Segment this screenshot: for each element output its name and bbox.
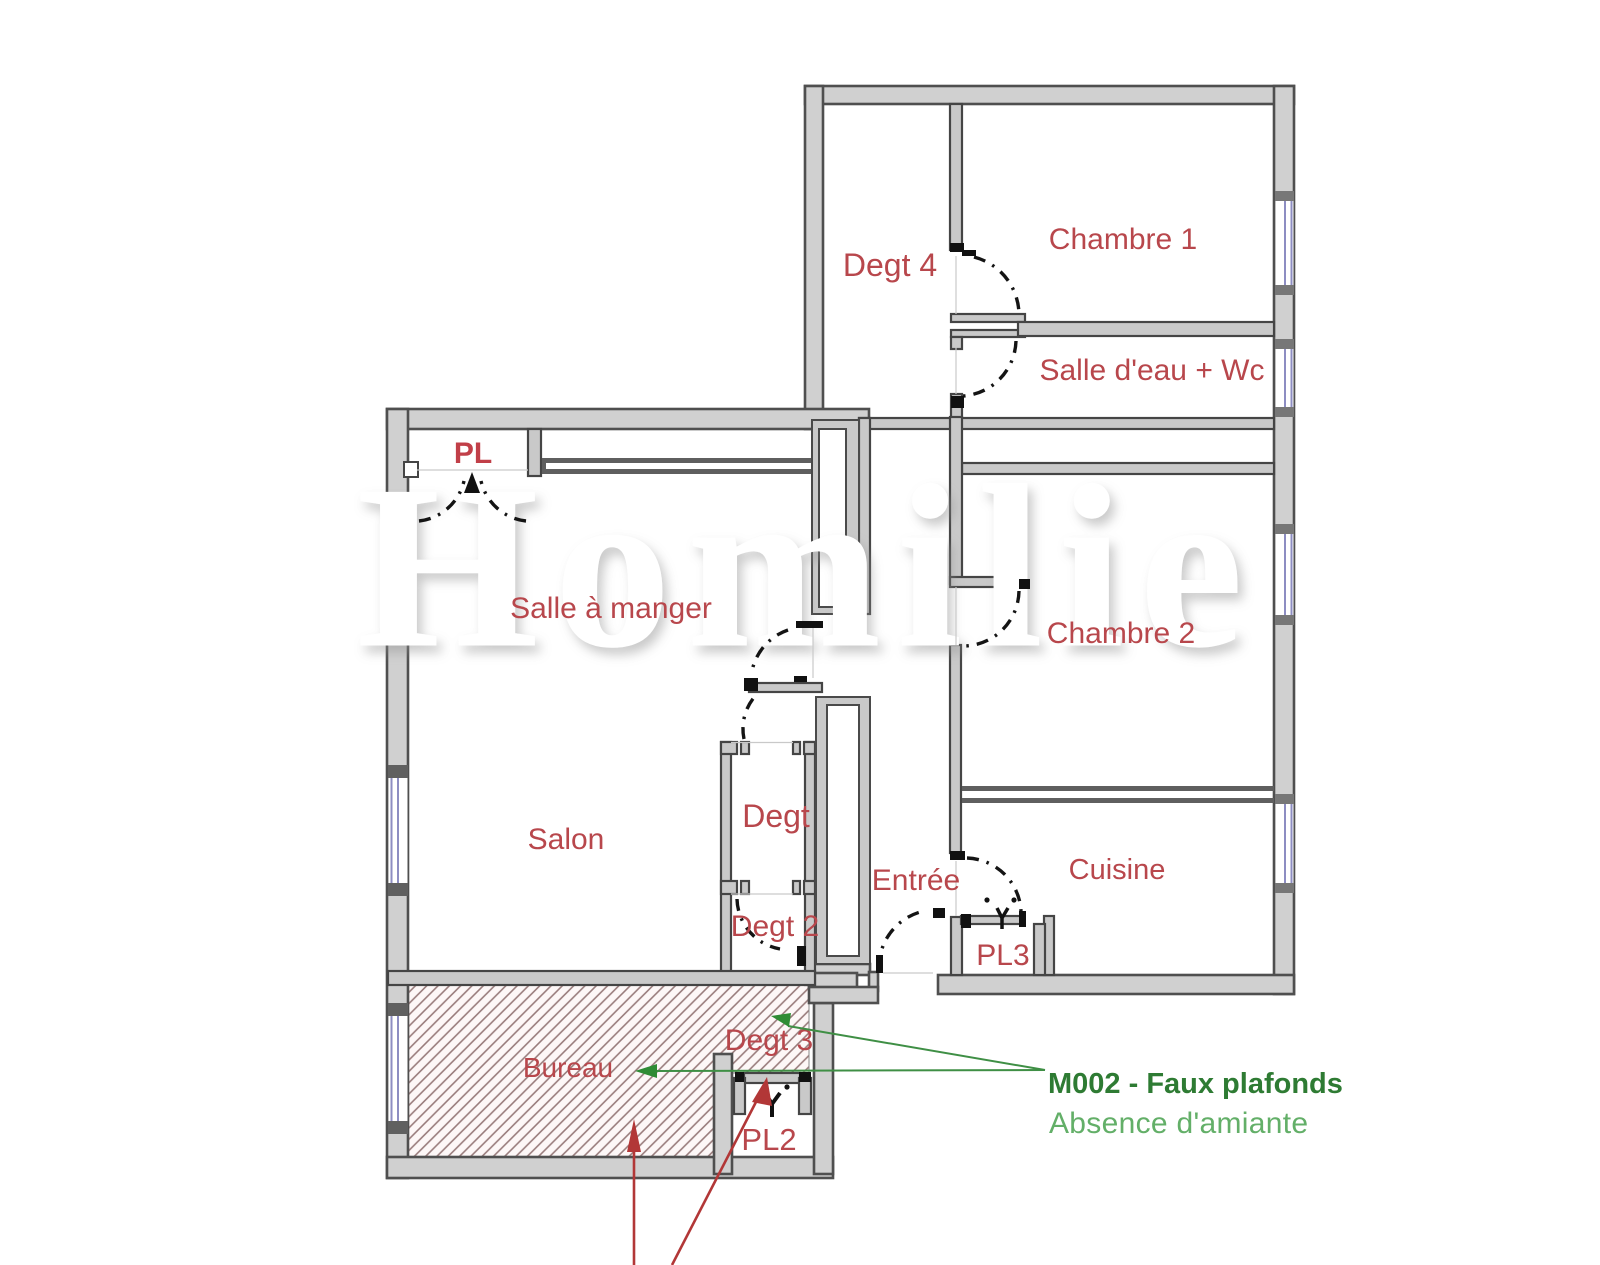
- svg-text:PL3: PL3: [976, 939, 1029, 972]
- svg-text:Degt 4: Degt 4: [843, 247, 937, 283]
- svg-text:Degt 2: Degt 2: [731, 910, 819, 943]
- svg-text:PL2: PL2: [741, 1122, 796, 1157]
- svg-text:PL: PL: [454, 437, 492, 470]
- svg-text:Homilie: Homilie: [357, 438, 1243, 696]
- svg-text:M002 - Faux plafonds: M002 - Faux plafonds: [1048, 1068, 1343, 1100]
- svg-text:Salle d'eau + Wc: Salle d'eau + Wc: [1039, 354, 1264, 387]
- svg-text:Entrée: Entrée: [872, 864, 960, 897]
- svg-text:Absence d'amiante: Absence d'amiante: [1049, 1107, 1308, 1140]
- svg-text:Degt: Degt: [742, 798, 810, 834]
- svg-text:Chambre 1: Chambre 1: [1049, 223, 1197, 256]
- svg-text:Salon: Salon: [528, 823, 605, 856]
- svg-text:Cuisine: Cuisine: [1069, 854, 1166, 886]
- svg-text:Salle à manger: Salle à manger: [510, 592, 712, 625]
- svg-text:Chambre 2: Chambre 2: [1047, 617, 1195, 650]
- svg-text:Bureau: Bureau: [523, 1052, 613, 1083]
